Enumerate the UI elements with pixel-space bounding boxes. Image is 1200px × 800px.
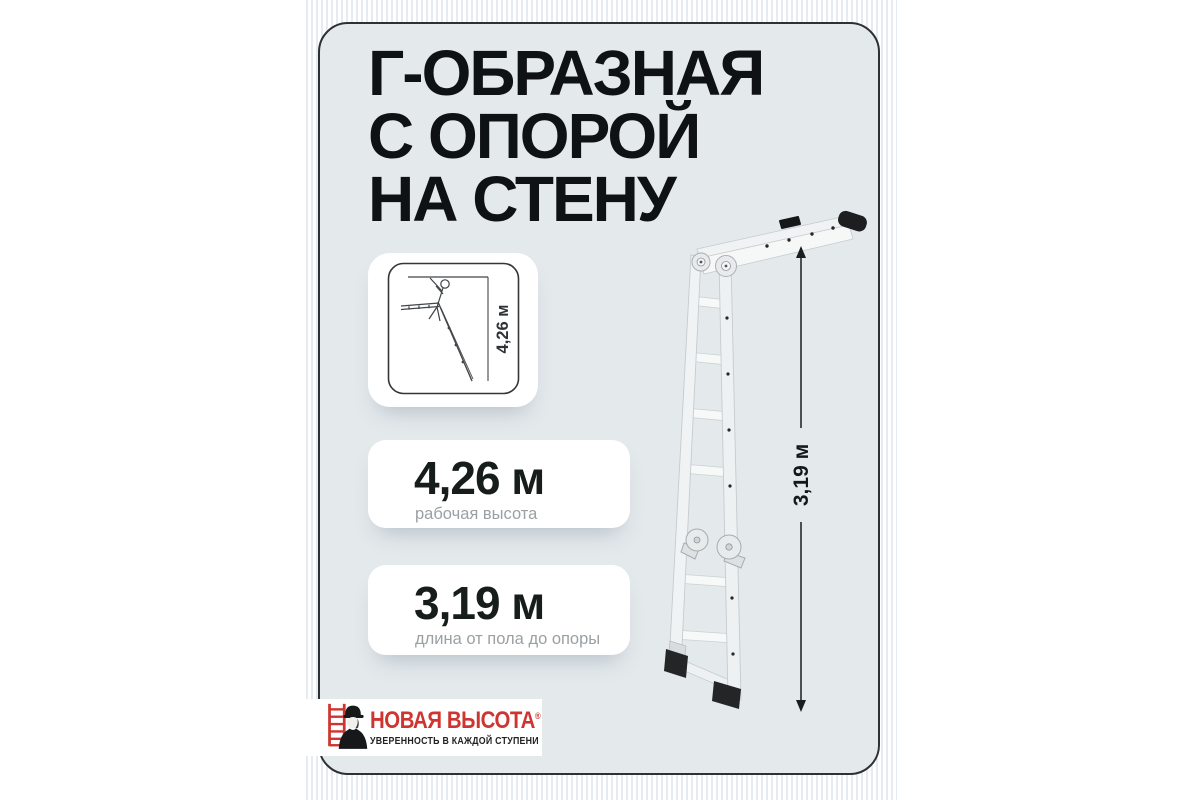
ladder-illustration: 3,19 м — [630, 195, 890, 720]
registered-mark: ® — [535, 711, 541, 721]
arm-clip — [780, 217, 800, 228]
brand-name-text: НОВАЯ ВЫСОТА — [370, 707, 535, 734]
product-banner: Г-ОБРАЗНАЯ С ОПОРОЙ НА СТЕНУ — [0, 0, 1200, 800]
spec-card-working-height: 4,26 м рабочая высота — [368, 440, 630, 528]
dimension-arrow-down — [796, 700, 806, 712]
dimension-line: 3,19 м — [790, 246, 813, 712]
usage-diagram-card: 4,26 м — [368, 253, 538, 407]
spec-value: 4,26 м — [414, 455, 630, 501]
spec-card-floor-to-support: 3,19 м длина от пола до опоры — [368, 565, 630, 655]
brand-name: НОВАЯ ВЫСОТА® — [370, 709, 541, 733]
spec-label: рабочая высота — [415, 505, 630, 524]
brand-tagline: УВЕРЕННОСТЬ В КАЖДОЙ СТУПЕНИ — [370, 736, 547, 747]
rivets — [725, 226, 834, 655]
spec-value: 3,19 м — [414, 580, 630, 626]
title-line-1: Г-ОБРАЗНАЯ — [368, 42, 763, 105]
brand-icon-drawing — [324, 701, 370, 749]
spec-label: длина от пола до опоры — [415, 630, 630, 649]
brand-text: НОВАЯ ВЫСОТА® УВЕРЕННОСТЬ В КАЖДОЙ СТУПЕ… — [370, 709, 571, 747]
title-line-2: С ОПОРОЙ — [368, 105, 763, 168]
ladder-drawing: 3,19 м — [630, 195, 890, 720]
usage-diagram-drawing: 4,26 м — [368, 253, 538, 407]
diagram-dimension-label: 4,26 м — [494, 305, 512, 354]
brand-ladder-worker-icon — [324, 701, 370, 754]
ladder-dimension-label: 3,19 м — [790, 444, 813, 506]
brand-logo-box: НОВАЯ ВЫСОТА® УВЕРЕННОСТЬ В КАЖДОЙ СТУПЕ… — [299, 699, 542, 756]
